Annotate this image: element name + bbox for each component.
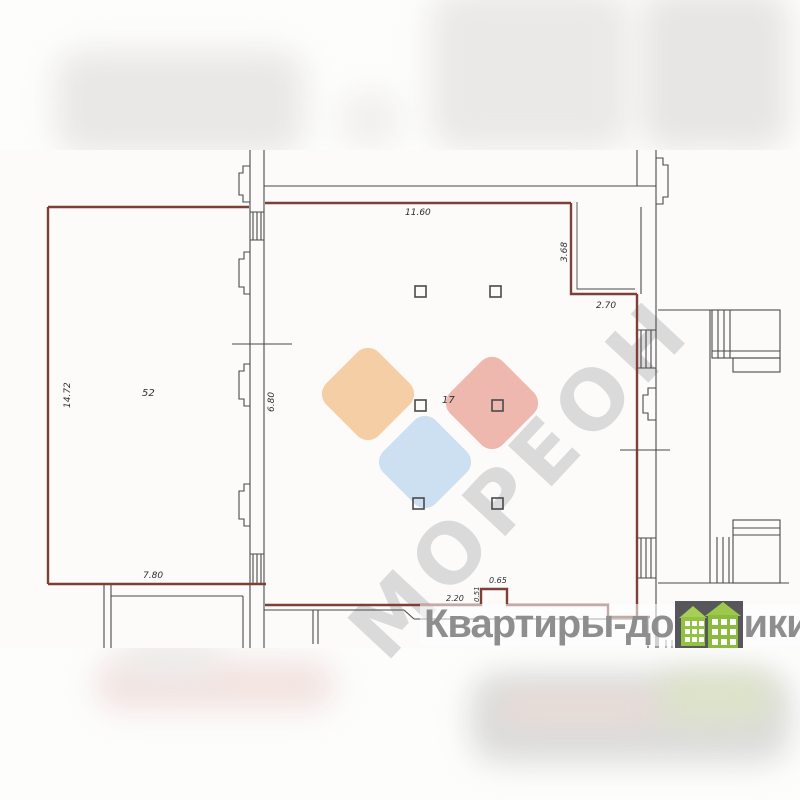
house-icon bbox=[679, 606, 707, 646]
dim-notch-height: 3.68 bbox=[560, 242, 570, 262]
column bbox=[415, 400, 426, 411]
dim-left-room-bottom: 7.80 bbox=[143, 571, 163, 581]
dim-top-width: 11.60 bbox=[405, 208, 431, 218]
room-label-left: 52 bbox=[142, 388, 155, 399]
dim-inner-wall-height: 6.80 bbox=[267, 392, 277, 412]
column bbox=[490, 286, 501, 297]
screenshot-root: МОРЕОН bbox=[0, 0, 800, 800]
notch-inner-line bbox=[577, 202, 635, 289]
site-watermark-text-right: ики.рф bbox=[744, 600, 800, 648]
dim-notch-width: 2.70 bbox=[596, 301, 616, 311]
main-room-notch bbox=[571, 203, 637, 294]
houses-icon bbox=[675, 601, 743, 648]
house-badge bbox=[675, 601, 743, 648]
site-watermark-text-left: Квартиры-до bbox=[424, 600, 674, 648]
window-right-wall-bottom bbox=[637, 538, 656, 578]
house-icon bbox=[705, 602, 741, 648]
dim-left-height: 14.72 bbox=[63, 382, 73, 408]
window-left-wall-bottom bbox=[250, 554, 264, 584]
site-watermark: Квартиры-до bbox=[424, 600, 800, 648]
column bbox=[415, 286, 426, 297]
room-label-main: 17 bbox=[442, 395, 455, 406]
dim-bottom-step-c: 0.65 bbox=[489, 576, 507, 585]
floor-plan: МОРЕОН bbox=[0, 0, 800, 800]
window-left-wall-top bbox=[250, 212, 264, 240]
